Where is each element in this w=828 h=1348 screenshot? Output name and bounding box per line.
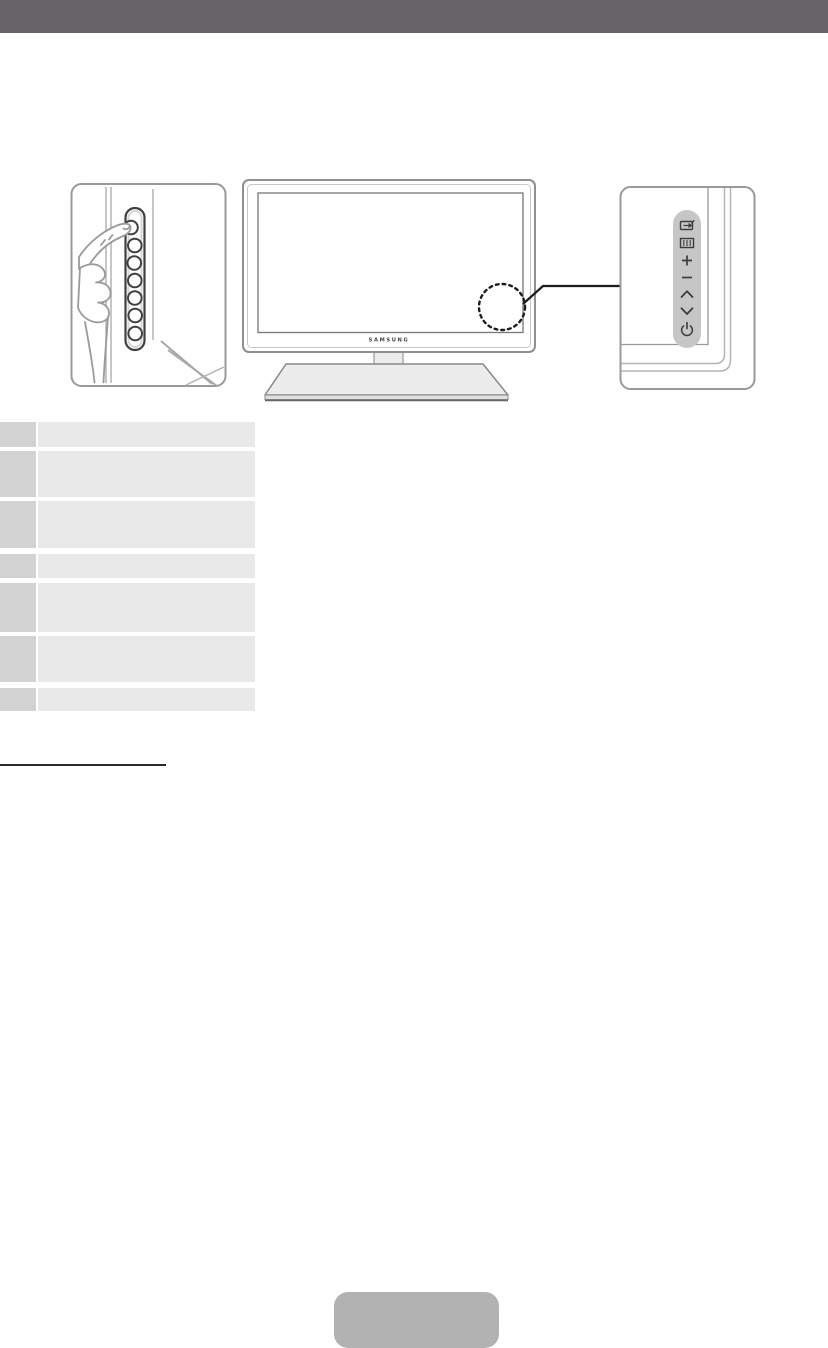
- control-panel-figure: SAMSUNG: [0, 150, 828, 420]
- samsung-logo: SAMSUNG: [369, 338, 410, 344]
- panel-button: [128, 327, 142, 341]
- table-row: [0, 501, 255, 548]
- table-row: [0, 554, 255, 578]
- table-row: [0, 583, 255, 632]
- tv-stand-base: [265, 364, 508, 395]
- button-cell: [0, 554, 36, 578]
- table-row: [0, 688, 255, 711]
- button-cell: [0, 451, 36, 497]
- panel-button: [128, 291, 142, 305]
- finger-press-illustration: [72, 184, 226, 386]
- button-cell: [0, 688, 36, 711]
- table-row: [0, 636, 255, 682]
- description-cell: [38, 688, 256, 711]
- button-cell: [0, 583, 36, 632]
- description-cell: [38, 422, 256, 447]
- bottom-button[interactable]: [334, 1292, 499, 1348]
- button-cell: [0, 636, 36, 682]
- description-cell: [38, 451, 256, 497]
- control-panel-closeup: [621, 187, 755, 389]
- description-cell: [38, 583, 256, 632]
- tv-screen: [258, 193, 523, 333]
- button-cell: [0, 501, 36, 548]
- callout-line: [523, 286, 620, 304]
- table-row: [0, 422, 255, 447]
- panel-button: [128, 256, 142, 270]
- tv-stand-base-front: [265, 395, 508, 400]
- button-cell: [0, 422, 36, 447]
- description-cell: [38, 636, 256, 682]
- panel-button: [128, 239, 142, 253]
- description-cell: [38, 501, 256, 548]
- panel-button: [128, 274, 142, 288]
- table-row: [0, 451, 255, 497]
- description-cell: [38, 554, 256, 578]
- section-heading-underline: [0, 764, 166, 766]
- top-header-bar: [0, 0, 828, 33]
- tv-front-illustration: SAMSUNG: [243, 180, 620, 401]
- panel-button: [128, 309, 142, 323]
